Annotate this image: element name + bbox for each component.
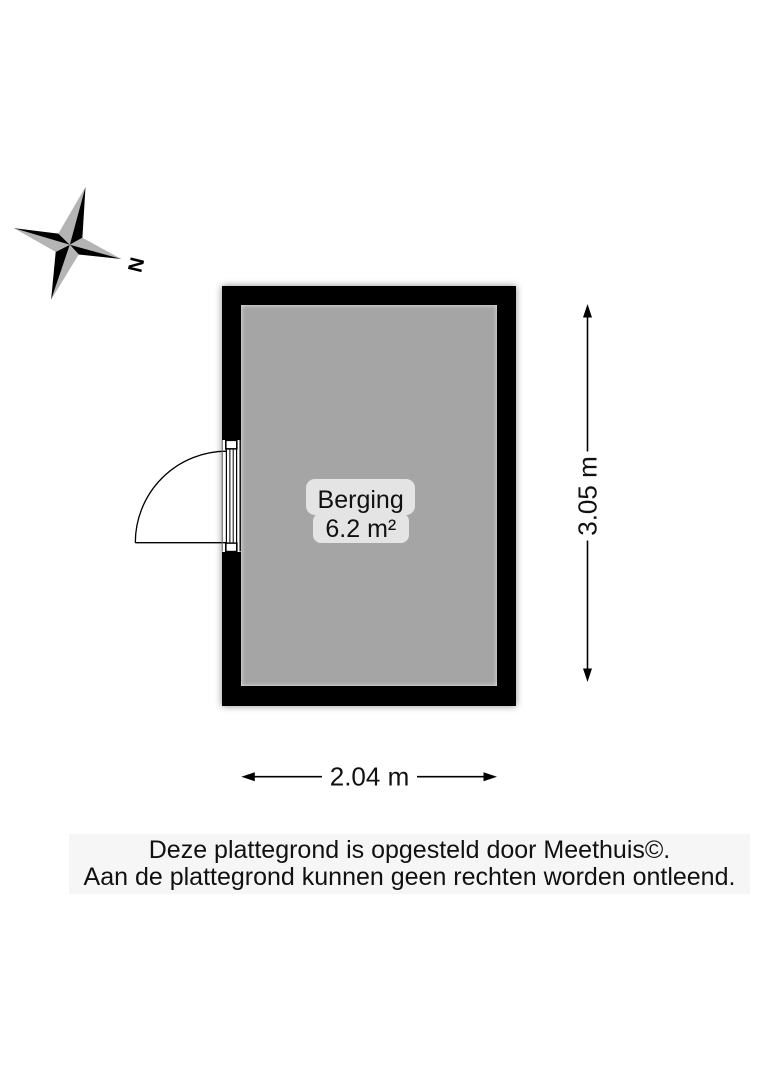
svg-text:2.04 m: 2.04 m — [330, 762, 410, 792]
